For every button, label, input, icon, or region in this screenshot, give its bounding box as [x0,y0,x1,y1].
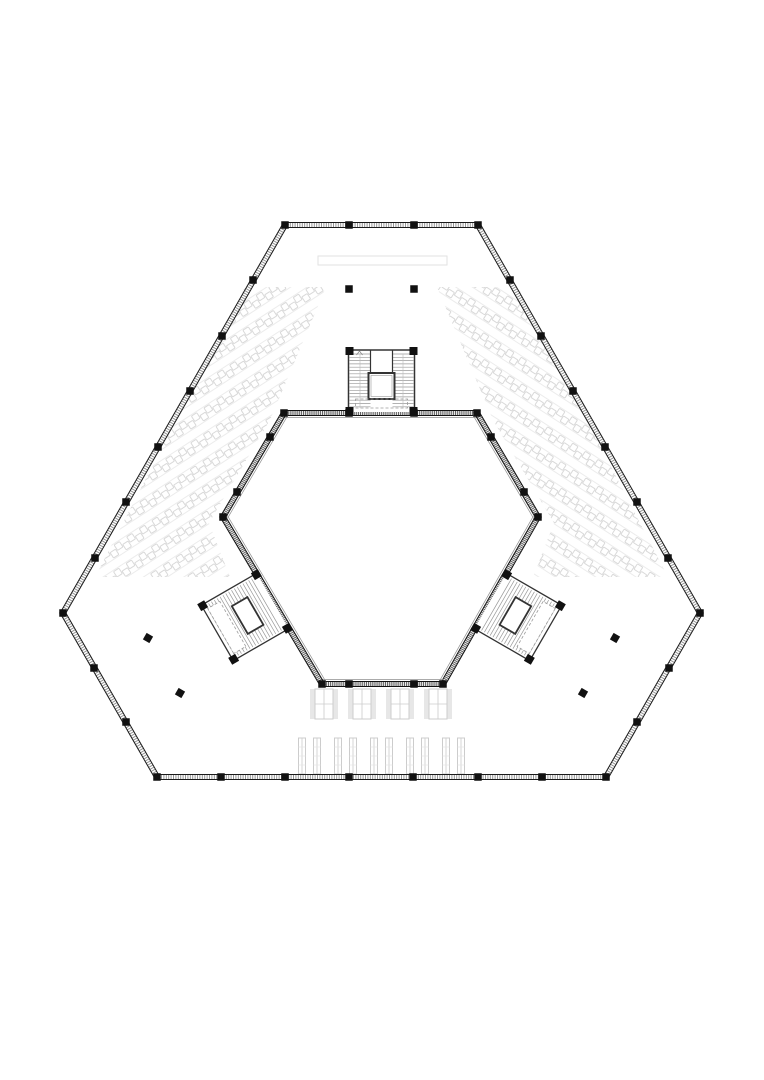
column [153,773,161,781]
column [345,680,353,688]
chair-icon [192,207,201,216]
chair-icon [419,398,428,407]
chair-icon [434,513,443,522]
chair-icon [474,439,483,448]
chair-icon [346,527,355,536]
chair-icon [216,271,225,280]
chair-icon [651,606,660,615]
chair-icon [53,503,62,512]
chair-icon [195,253,204,262]
chair-icon [409,486,418,495]
chair-icon [338,349,347,358]
chair-icon [68,388,77,397]
chair-icon [187,626,196,635]
chair-icon [682,517,691,526]
chair-icon [183,607,192,616]
chair-icon [388,495,397,504]
chair-icon [434,334,443,343]
chair-icon [729,363,738,372]
chair-icon [723,496,732,505]
chair-icon [63,449,72,458]
chair-icon [670,356,679,365]
chair-icon [138,400,147,409]
chair-icon [63,422,72,431]
chair-icon [117,408,126,417]
chair-icon [337,402,346,411]
chair-icon [202,332,211,341]
chair-icon [259,558,268,567]
chair-icon [38,465,47,474]
chair-icon [318,304,327,313]
chair-icon [313,339,322,348]
chair-icon [354,333,363,342]
chair-icon [705,400,714,409]
chair-icon [602,627,611,636]
chair-icon [263,550,272,559]
chair-icon [757,360,764,369]
column [665,664,673,672]
chair-icon [643,260,652,269]
chair-icon [166,250,175,259]
chair-icon [64,548,73,557]
chair-icon [296,533,305,542]
chair-icon [554,302,563,311]
chair-icon [644,466,653,475]
chair-icon [55,396,64,405]
chair-icon [407,417,416,426]
chair-icon [254,193,263,202]
chair-icon [119,329,128,338]
chair-icon [722,469,731,478]
chair-icon [490,234,499,243]
chair-icon [654,367,663,376]
chair-icon [291,374,300,383]
chair-icon [157,277,166,286]
chair-icon [659,580,668,589]
column [410,221,418,229]
chair-icon [605,361,614,370]
chair-icon [253,246,262,255]
chair-icon [52,529,61,538]
chair-icon [598,619,607,628]
chair-icon [161,642,170,651]
chair-icon [260,478,269,487]
chair-icon [419,372,428,381]
chair-icon [431,353,440,362]
chair-icon [228,263,237,272]
chair-icon [13,455,22,464]
chair-icon [132,666,141,675]
chair-icon [673,489,682,498]
chair-icon [232,255,241,264]
chair-icon [54,297,63,306]
chair-icon [163,589,172,598]
chair-icon [7,349,16,358]
chair-icon [81,380,90,389]
chair-icon [242,175,251,184]
chair-icon [703,347,712,356]
chair-icon [656,447,665,456]
chair-icon [358,437,367,446]
chair-icon [276,515,285,524]
chair-icon [666,349,675,358]
chair-icon [235,521,244,530]
chair-icon [116,435,125,444]
chair-icon [631,252,640,261]
chair-icon [421,452,430,461]
chair-icon [241,228,250,237]
chair-icon [66,316,75,325]
chair-icon [459,351,468,360]
chair-icon [294,241,303,250]
chair-icon [112,621,121,630]
chair-icon [228,289,237,298]
chair-icon [556,230,565,239]
chair-icon [635,438,644,447]
chair-icon [587,664,596,673]
chair-icon [612,681,621,690]
chair-icon [175,581,184,590]
chair-icon [51,404,60,413]
chair-icon [708,533,717,542]
chair-icon [758,387,764,396]
chair-icon [657,322,666,331]
chair-icon [447,521,456,530]
chair-icon [555,203,564,212]
chair-icon [303,419,312,428]
column [249,276,257,284]
chair-icon [251,505,260,514]
chair-icon [3,356,12,365]
shelf-group [407,738,429,774]
chair-icon [635,617,644,626]
chair-icon [731,317,740,326]
chair-icon [271,576,280,585]
chair-icon [252,478,261,487]
chair-icon [413,479,422,488]
chair-icon [127,355,136,364]
chair-icon [301,347,310,356]
chair-icon [694,319,703,328]
chair-icon [710,461,719,470]
column [487,433,495,441]
chair-icon [411,424,420,433]
chair-icon [518,178,527,187]
chair-icon [139,346,148,355]
chair-icon [30,412,39,421]
chair-icon [264,470,273,479]
chair-icon [103,470,112,479]
chair-icon [617,343,626,352]
chair-icon [372,472,381,481]
chair-icon [603,653,612,662]
chair-icon [128,301,137,310]
chair-icon [458,271,467,280]
chair-icon [641,332,650,341]
chair-icon [126,408,135,417]
chair-icon [204,226,213,235]
chair-icon [204,252,213,261]
chair-icon [103,496,112,505]
chair-icon [18,394,27,403]
chair-icon [623,457,632,466]
chair-icon [535,578,544,587]
chair-icon [661,481,670,490]
chair-icon [39,412,48,421]
chair-icon [613,582,622,591]
chair-icon [450,476,459,485]
chair-icon [462,457,471,466]
chair-icon [706,480,715,489]
column [122,718,130,726]
chair-icon [754,379,763,388]
column [233,488,241,496]
chair-icon [657,500,666,509]
chair-icon [245,247,254,256]
chair-icon [275,390,284,399]
chair-icon [52,377,61,386]
chair-icon [312,571,321,580]
chair-icon [539,214,548,223]
chair-icon [126,381,135,390]
chair-icon [626,590,635,599]
chair-icon [90,353,99,362]
chair-icon [53,350,62,359]
chair-icon [156,331,165,340]
chair-icon [100,603,109,612]
chair-icon [212,583,221,592]
chair-icon [2,383,11,392]
chair-icon [622,430,631,439]
chair-icon [533,293,542,302]
chair-icon [538,533,547,542]
chair-icon [483,466,492,475]
chair-icon [149,650,158,659]
chair-icon [390,415,399,424]
chair-icon [593,406,602,415]
chair-icon [523,570,532,579]
chair-icon [96,611,105,620]
chair-icon [62,475,71,484]
chair-icon [703,320,712,329]
chair-icon [334,474,343,483]
chair-icon [531,213,540,222]
chair-icon [141,267,150,276]
chair-icon [133,639,142,648]
chair-icon [141,293,150,302]
stair-core-right [470,569,566,665]
chair-icon [270,204,279,213]
chair-icon [484,519,493,528]
chair-icon [706,301,715,310]
chair-icon [176,375,185,384]
chair-icon [471,484,480,493]
chair-icon [608,342,617,351]
chair-icon [116,462,125,471]
chair-icon [130,374,139,383]
chair-icon [573,629,582,638]
chair-icon [350,519,359,528]
chair-icon [505,170,514,179]
chair-icon [464,537,473,546]
chair-icon [695,373,704,382]
chair-icon [458,476,467,485]
chair-icon [169,296,178,305]
chair-icon [611,654,620,663]
chair-icon [129,427,138,436]
chair-icon [384,480,393,489]
chair-icon [746,405,755,414]
chair-icon [5,429,14,438]
chair-icon [493,189,502,198]
chair-icon [716,355,725,364]
chair-icon [680,410,689,419]
chair-icon [139,373,148,382]
chair-icon [627,643,636,652]
chair-icon [619,449,628,458]
chair-icon [142,419,151,428]
chair-icon [80,406,89,415]
chair-icon [601,600,610,609]
chair-icon [454,263,463,272]
chair-icon [656,420,665,429]
chair-icon [350,437,359,446]
chair-icon [435,387,444,396]
chair-icon [697,453,706,462]
chair-icon [628,298,637,307]
chair-icon [566,283,575,292]
chair-icon [757,334,764,343]
chair-icon [196,226,205,235]
chair-icon [145,286,154,295]
chair-icon [529,286,538,295]
chair-icon [683,391,692,400]
chair-icon [370,419,379,428]
chair-icon [55,423,64,432]
chair-icon [73,547,82,556]
chair-icon [408,443,417,452]
chair-icon [194,280,203,289]
chair-icon [494,242,503,251]
chair-icon [412,451,421,460]
chair-icon [695,346,704,355]
chair-icon [577,610,586,619]
chair-icon [363,472,372,481]
chair-icon [477,572,486,581]
chair-icon [705,426,714,435]
chair-icon [556,256,565,265]
chair-icon [310,498,319,507]
exterior-wall [283,223,481,228]
chair-icon [530,187,539,196]
chair-icon [376,476,385,485]
chair-icon [618,396,627,405]
chair-icon [290,454,299,463]
chair-icon [350,463,359,472]
chair-icon [674,516,683,525]
chair-icon [163,383,172,392]
chair-icon [317,331,326,340]
chair-icon [722,442,731,451]
chair-icon [97,584,106,593]
chair-icon [388,488,397,497]
chair-icon [698,479,707,488]
chair-icon [314,491,323,500]
chair-icon [6,376,15,385]
chair-icon [347,474,356,483]
chair-icon [272,523,281,532]
chair-icon [430,327,439,336]
chair-icon [728,336,737,345]
chair-icon [646,393,655,402]
chair-icon [464,564,473,573]
column [281,221,289,229]
chair-icon [426,512,435,521]
chair-icon [336,429,345,438]
chair-icon [528,259,537,268]
chair-icon [323,464,332,473]
chair-icon [437,467,446,476]
chair-icon [178,295,187,304]
courtyard-wall [320,682,446,687]
chair-icon [53,324,62,333]
chair-icon [312,544,321,553]
chair-icon [36,518,45,527]
chair-icon [729,390,738,399]
chair-icon [585,611,594,620]
chair-icon [546,328,555,337]
chair-icon [325,536,334,545]
chair-icon [414,531,423,540]
chair-icon [540,240,549,249]
chair-icon [373,431,382,440]
chair-icon [182,261,191,270]
chair-icon [329,376,338,385]
chair-icon [568,238,577,247]
chair-icon [334,448,343,457]
chair-icon [242,201,251,210]
chair-icon [107,284,116,293]
chair-icon [709,407,718,416]
chair-icon [137,605,146,614]
chair-icon [434,470,443,479]
column [59,609,67,617]
chair-icon [299,579,308,588]
chair-icon [89,379,98,388]
chair-icon [137,453,146,462]
chair-icon [124,640,133,649]
chair-icon [576,584,585,593]
chair-icon [115,488,124,497]
chair-icon [557,283,566,292]
chair-icon [450,502,459,511]
chair-icon [217,191,226,200]
chair-icon [433,281,442,290]
chair-icon [653,314,662,323]
chair-icon [95,292,104,301]
chair-icon [639,625,648,634]
chair-icon [203,279,212,288]
chair-icon [339,474,348,483]
chair-icon [639,598,648,607]
chair-icon [94,345,103,354]
chair-icon [154,258,163,267]
chair-icon [593,380,602,389]
chair-icon [372,499,381,508]
chair-icon [365,431,374,440]
chair-icon [322,493,331,502]
chair-icon [372,484,381,493]
